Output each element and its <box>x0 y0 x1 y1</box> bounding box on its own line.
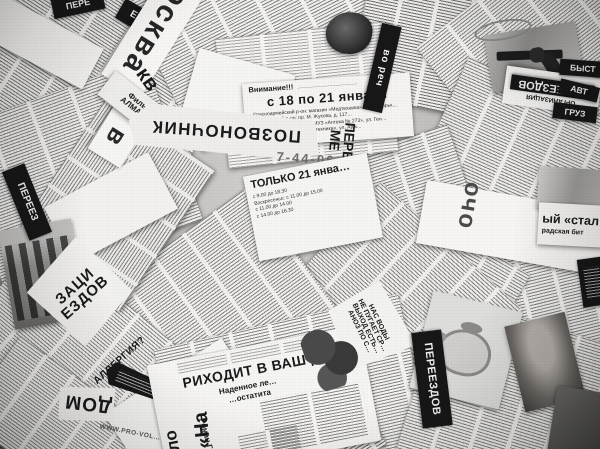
pereezdov-text: ПЕРЕЕЗДОВ <box>422 342 442 416</box>
chip-label: ГРУЗ <box>564 107 586 118</box>
chip-microtext <box>583 266 600 299</box>
pozvonochnik-text: ПОЗВОНОЧНИК <box>151 118 302 145</box>
newspaper-collage-photo: ПЕРЕ ЕЗ осква в кв Филь… АЛМАГ… Внимание… <box>0 0 600 449</box>
chip-label: БЫСТ <box>570 63 596 73</box>
moskva-tail-text: в <box>102 123 133 150</box>
ocho-fragment: очо <box>434 168 505 243</box>
ocho-text: очо <box>453 180 485 232</box>
dom-text: ДОМ <box>63 392 112 417</box>
prihodit-big2: ло <box>162 429 183 449</box>
chip-label: АВТ <box>570 84 589 96</box>
stal-line2: радская бит <box>541 227 583 236</box>
chip-label: ПЕРЕ <box>65 0 91 11</box>
strip-text: во реч <box>373 48 391 87</box>
stal-line1: ый «стал <box>542 213 599 228</box>
stal-headline-clipping: ый «стал радская бит <box>537 202 600 248</box>
